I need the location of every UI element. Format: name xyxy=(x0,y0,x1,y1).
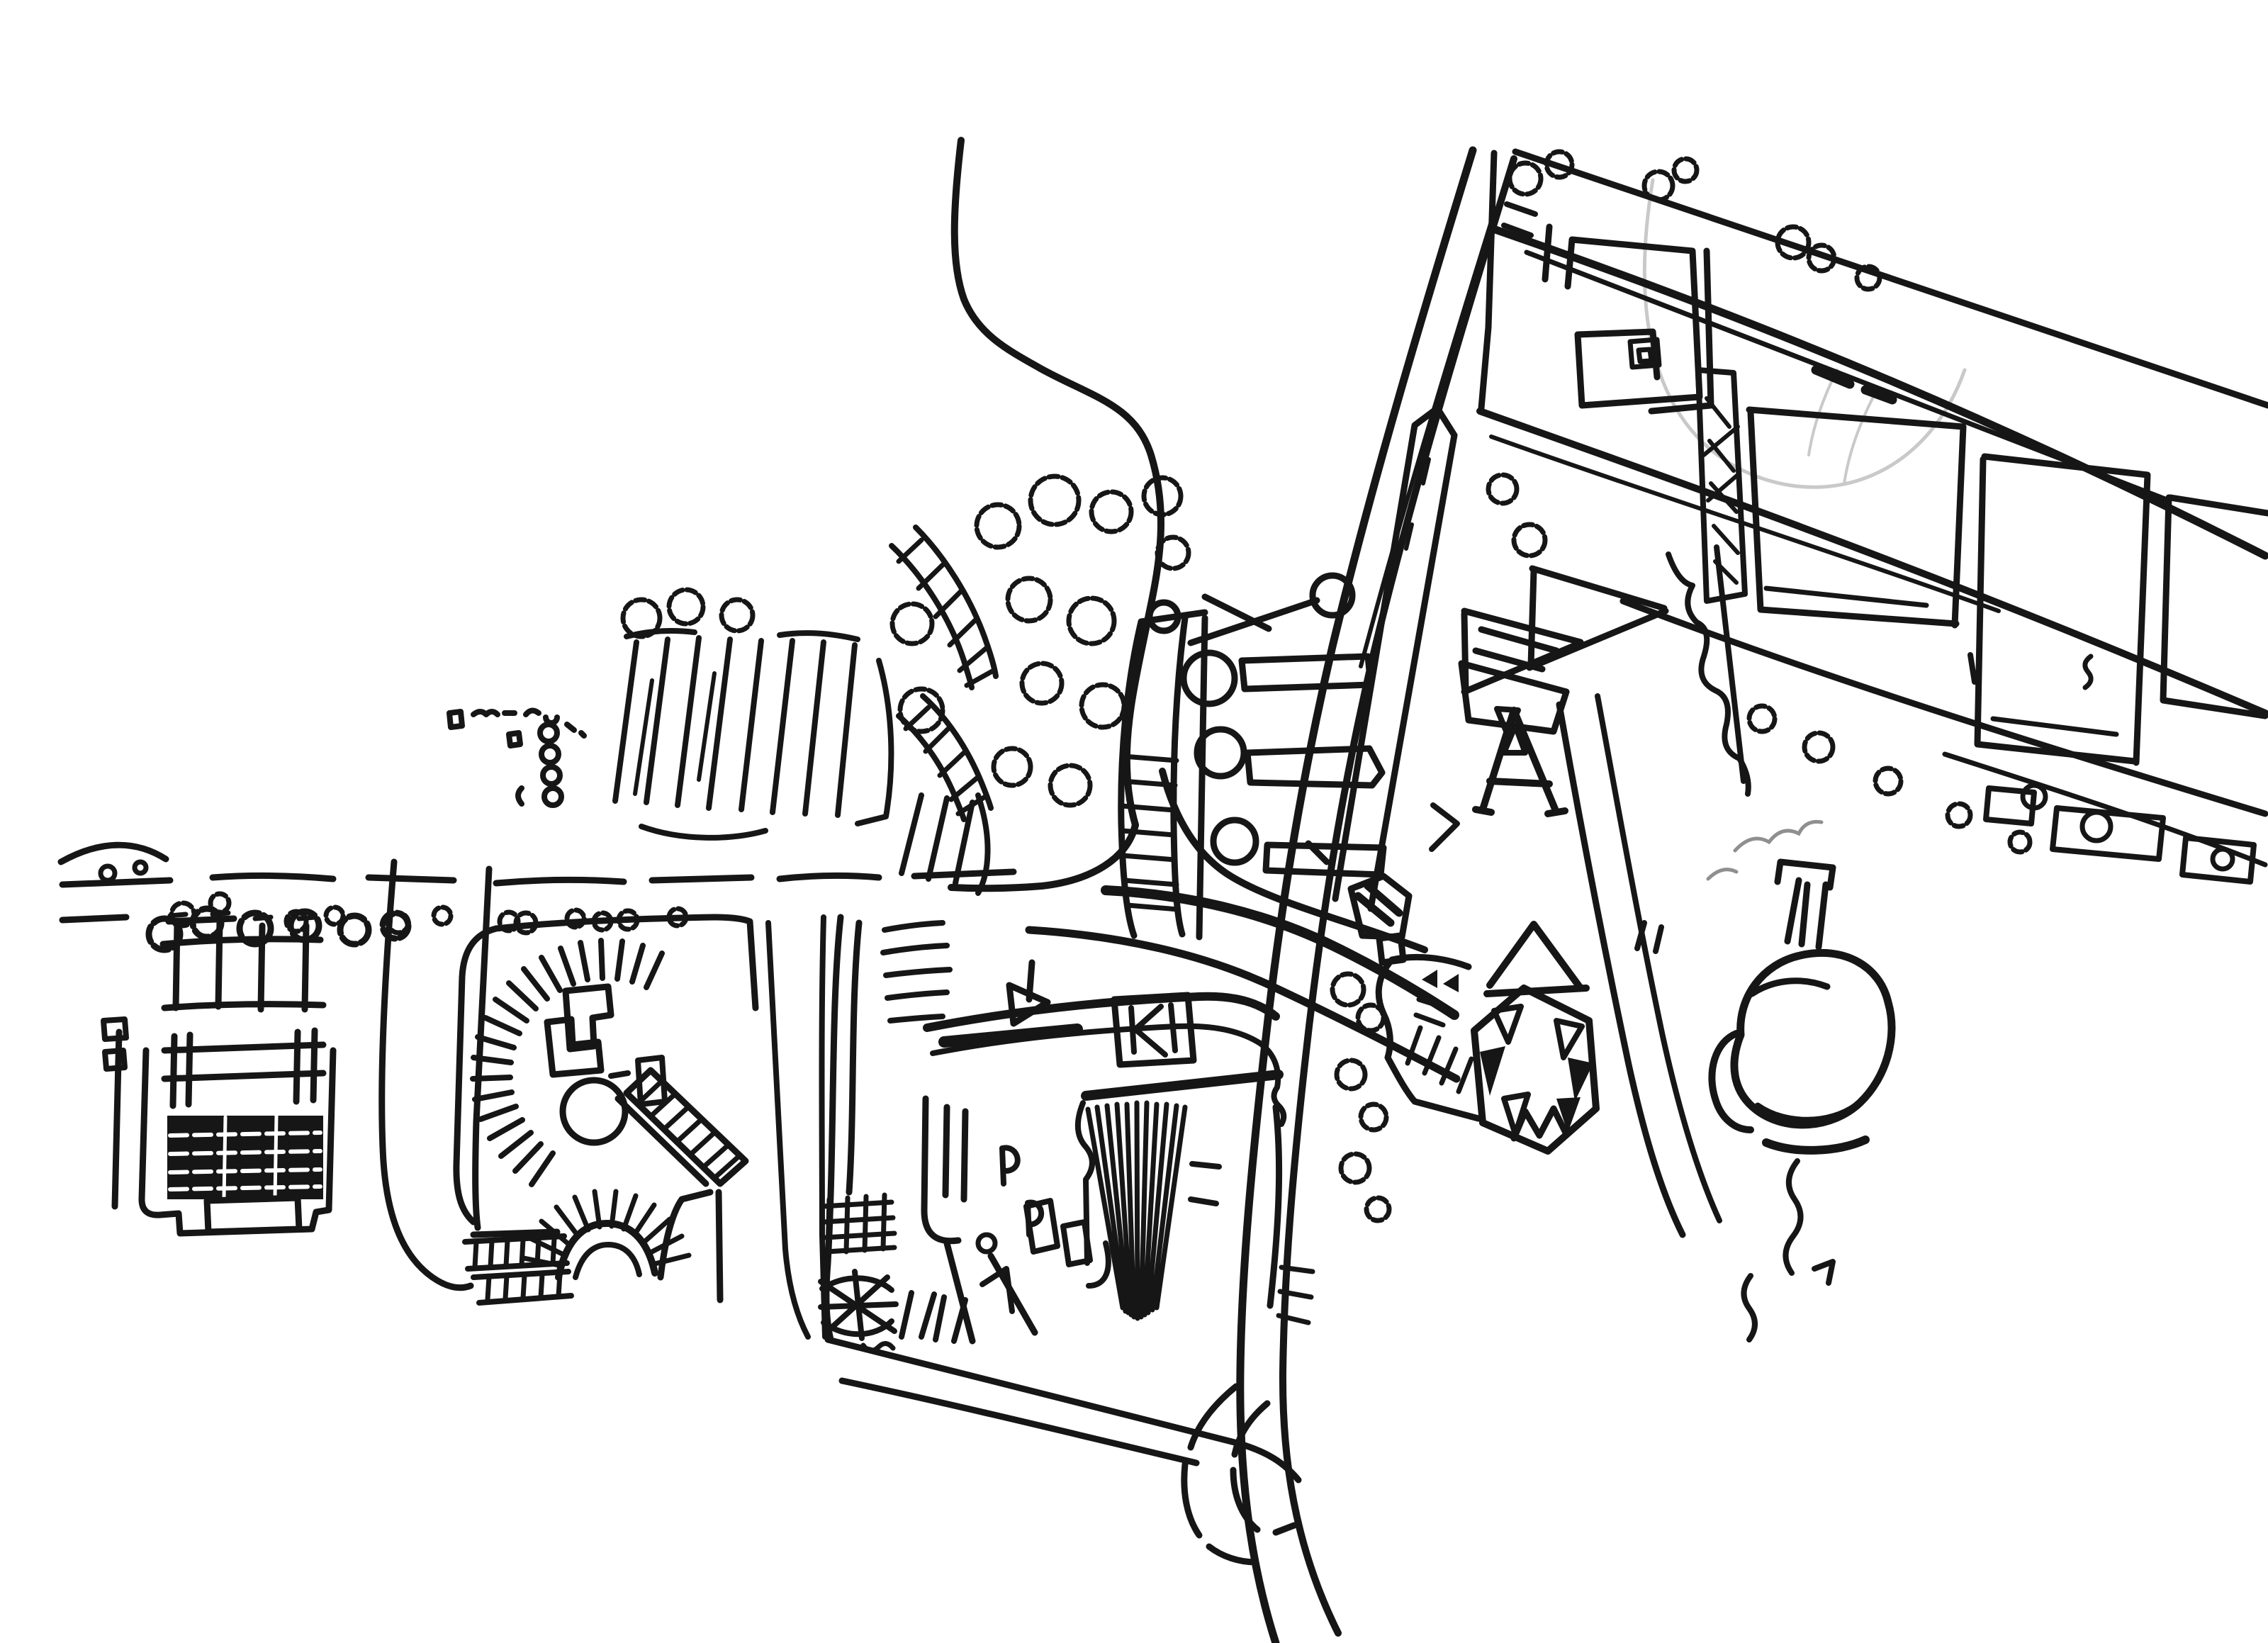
sketch-page xyxy=(0,0,2268,1643)
star-folly xyxy=(821,1272,896,1338)
sketch-map-canvas xyxy=(0,0,2268,1643)
